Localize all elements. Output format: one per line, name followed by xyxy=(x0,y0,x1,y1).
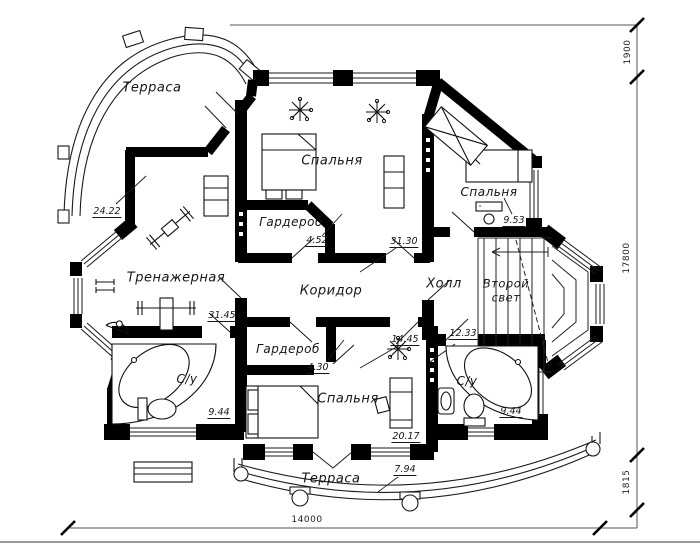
desk-right-bedroom xyxy=(476,202,502,224)
area-hall: 12.33 xyxy=(448,328,477,340)
room-label-bedroom-bottom: Спальня xyxy=(317,392,378,407)
area-terrace-bottom: 7.94 xyxy=(393,464,416,476)
room-label-terrace-bottom: Терраса xyxy=(301,472,360,487)
desk-bottom-bedroom xyxy=(374,378,412,428)
area-bedroom-bottom: 20.17 xyxy=(391,431,420,443)
area-bathroom-right: 9.44 xyxy=(499,406,522,418)
bed-bottom-bedroom xyxy=(246,386,318,438)
terrace-bottom-railing xyxy=(234,432,600,511)
room-label-hall: Холл xyxy=(426,277,461,292)
area-terrace-top: 24.22 xyxy=(92,206,121,218)
area-bedroom-right: 9.53 xyxy=(502,215,525,227)
room-label-wardrobe-bottom: Гардероб xyxy=(256,342,320,356)
toilet-left xyxy=(138,398,176,420)
area-corridor: 14.45 xyxy=(390,334,419,346)
area-gym: 31.45 xyxy=(207,310,236,322)
sink-right xyxy=(438,388,454,414)
area-wardrobe-top: 4.52 xyxy=(305,235,328,247)
room-label-gym: Тренажерная xyxy=(127,271,225,286)
dimension-right-top: 1900 xyxy=(623,40,633,65)
dimension-right-middle: 17800 xyxy=(622,242,632,273)
floor-plan-canvas: Терраса Спальня Гардероб Тренажерная Кор… xyxy=(0,0,700,560)
toilet-right xyxy=(464,394,485,426)
entry-steps xyxy=(134,462,192,482)
room-label-bedroom-top: Спальня xyxy=(301,154,362,169)
room-label-bedroom-right: Спальня xyxy=(461,185,518,199)
area-bathroom-left: 9.44 xyxy=(207,407,230,419)
area-wardrobe-bottom: 4.30 xyxy=(306,362,329,374)
room-label-second-light: Второй свет xyxy=(474,277,538,306)
room-label-bathroom-right: С/у xyxy=(456,374,477,388)
dimension-right-bottom: 1815 xyxy=(622,470,632,495)
room-label-wardrobe-top: Гардероб xyxy=(259,215,323,229)
dresser-top-bedroom xyxy=(384,156,404,208)
room-label-corridor: Коридор xyxy=(300,284,363,299)
room-label-terrace-top: Терраса xyxy=(122,81,181,96)
room-label-bathroom-left: С/у xyxy=(176,372,197,386)
terrace-top-railing xyxy=(58,27,261,223)
dimension-bottom-width: 14000 xyxy=(291,515,322,525)
area-bedroom-top: 31.30 xyxy=(389,236,418,248)
